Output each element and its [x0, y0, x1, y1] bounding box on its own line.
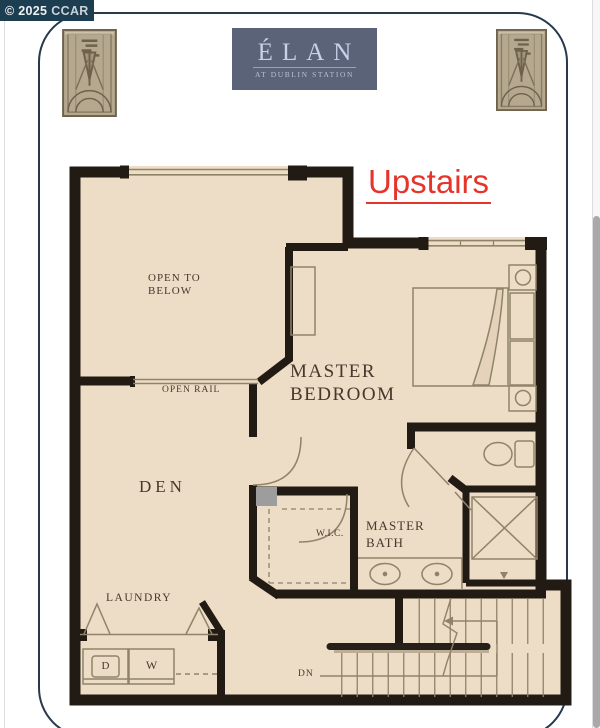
art-deco-ornament-icon	[62, 29, 117, 117]
watermark-banner: © 2025 CCAR	[0, 0, 94, 21]
washer-label: W	[129, 650, 174, 681]
room-label-laundry: LAUNDRY	[106, 592, 172, 605]
scrollbar-thumb[interactable]	[593, 216, 600, 728]
copyright-text: © 2025	[5, 4, 47, 18]
elan-logo: ÉLAN AT DUBLIN STATION	[232, 28, 377, 90]
stairs-down-label: DN	[298, 669, 314, 680]
art-deco-ornament-icon	[496, 28, 547, 112]
logo-title: ÉLAN	[249, 40, 361, 66]
floor-level-label: Upstairs	[366, 164, 491, 204]
window-master-bedroom	[419, 237, 548, 250]
logo-subtitle: AT DUBLIN STATION	[253, 67, 356, 79]
room-label-den: DEN	[139, 477, 186, 497]
room-label-master-bath: MASTER BATH	[366, 517, 425, 551]
room-label-master-bedroom: MASTER BEDROOM	[290, 360, 396, 406]
floorplan-page: OPEN TO BELOW OPEN RAIL MASTER BEDROOM D…	[0, 0, 600, 728]
room-label-open-to-below: OPEN TO BELOW	[148, 272, 201, 298]
wic-column-block	[256, 487, 277, 506]
org-name: CCAR	[51, 4, 88, 18]
dryer-label: D	[92, 656, 119, 677]
rail-end-post	[130, 376, 135, 387]
room-label-wic: W.I.C.	[316, 529, 344, 540]
room-label-open-rail: OPEN RAIL	[162, 385, 220, 396]
